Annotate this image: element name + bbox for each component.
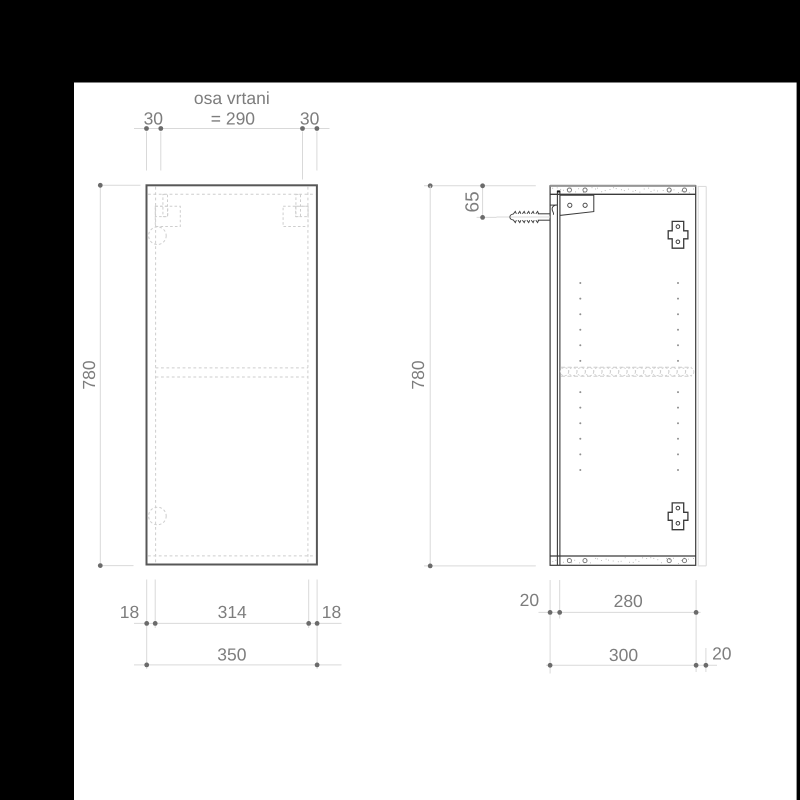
svg-text:osa vrtani: osa vrtani: [194, 88, 270, 108]
svg-text:300: 300: [609, 645, 638, 665]
svg-text:780: 780: [79, 360, 99, 389]
svg-text:30: 30: [144, 108, 164, 128]
svg-text:314: 314: [218, 602, 247, 622]
svg-text:280: 280: [614, 591, 643, 611]
svg-text:= 290: = 290: [211, 108, 256, 128]
svg-text:18: 18: [322, 602, 341, 622]
svg-text:20: 20: [712, 644, 732, 664]
svg-text:30: 30: [300, 108, 320, 128]
svg-text:18: 18: [120, 602, 139, 622]
svg-text:65: 65: [462, 191, 483, 212]
svg-text:20: 20: [520, 590, 540, 610]
svg-text:780: 780: [408, 360, 428, 389]
svg-text:350: 350: [217, 645, 246, 665]
